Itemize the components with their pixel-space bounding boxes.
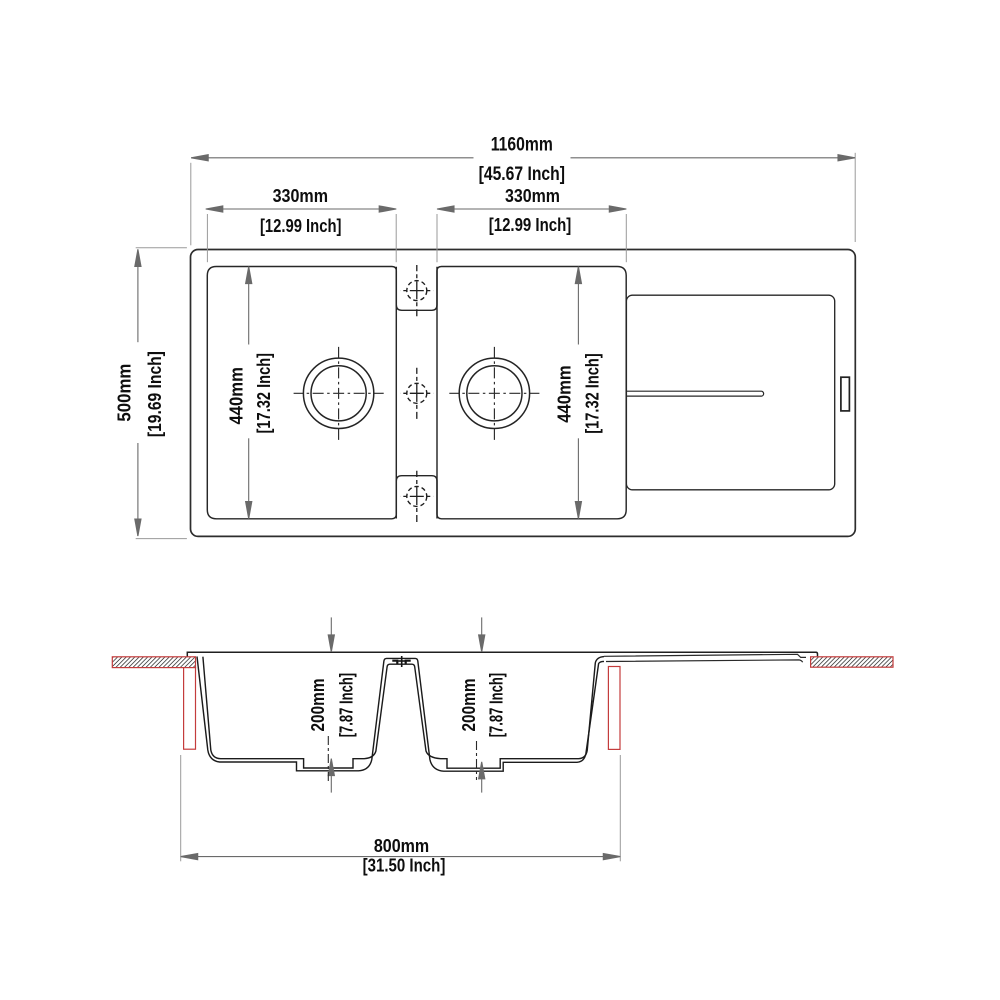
- svg-text:[7.87 Inch]: [7.87 Inch]: [335, 673, 356, 737]
- svg-text:[17.32 Inch]: [17.32 Inch]: [253, 353, 274, 434]
- svg-text:[19.69 Inch]: [19.69 Inch]: [144, 351, 165, 437]
- svg-text:800mm: 800mm: [374, 835, 429, 856]
- svg-text:330mm: 330mm: [273, 185, 328, 206]
- svg-text:[31.50 Inch]: [31.50 Inch]: [363, 855, 446, 876]
- svg-text:440mm: 440mm: [553, 365, 574, 423]
- svg-text:[12.99 Inch]: [12.99 Inch]: [260, 215, 342, 236]
- svg-text:500mm: 500mm: [114, 364, 135, 422]
- svg-text:200mm: 200mm: [458, 679, 479, 732]
- svg-text:440mm: 440mm: [225, 367, 246, 425]
- svg-text:[17.32 Inch]: [17.32 Inch]: [582, 353, 603, 434]
- svg-text:330mm: 330mm: [505, 185, 560, 206]
- svg-text:200mm: 200mm: [307, 679, 328, 732]
- svg-text:[7.87 Inch]: [7.87 Inch]: [485, 673, 506, 737]
- svg-text:[45.67 Inch]: [45.67 Inch]: [479, 164, 565, 185]
- svg-text:1160mm: 1160mm: [491, 135, 553, 156]
- svg-text:[12.99 Inch]: [12.99 Inch]: [489, 214, 572, 235]
